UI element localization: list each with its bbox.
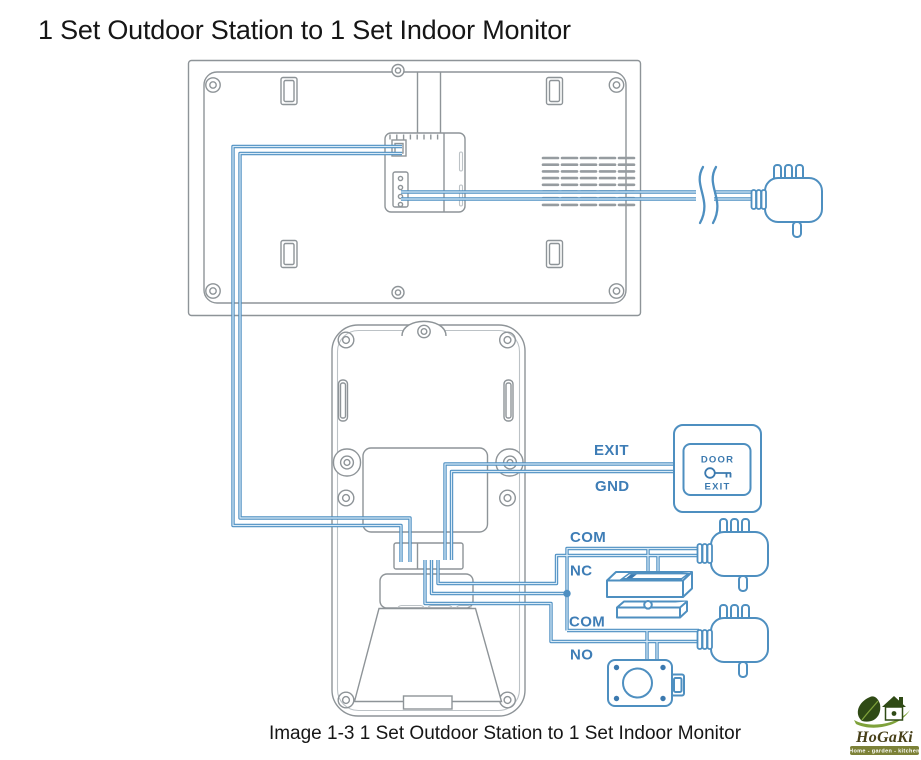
cable-break-icon (700, 167, 718, 223)
no-label: NO (570, 647, 593, 664)
nc-label: NC (570, 563, 592, 580)
power-adapter-icon (752, 165, 823, 237)
armature-plate (617, 601, 687, 618)
com-bottom-label: COM (569, 614, 605, 631)
speaker-horn (355, 609, 502, 702)
indoor-monitor-rear-panel (189, 61, 641, 316)
wire-junction-dot (563, 590, 570, 597)
image-caption: Image 1-3 1 Set Outdoor Station to 1 Set… (269, 723, 741, 745)
brand-logo: HoGaKi Home - garden - kitchen (848, 694, 921, 758)
power-adapter-icon (698, 605, 769, 677)
door-exit-button-exit-label: EXIT (705, 482, 731, 493)
logo-brand-text: HoGaKi (855, 729, 913, 746)
com-top-label: COM (570, 529, 606, 546)
gnd-label: GND (595, 478, 630, 495)
magnetic-lock (607, 572, 692, 597)
manual-page: 1 Set Outdoor Station to 1 Set Indoor Mo… (0, 0, 921, 760)
door-exit-button-door-label: DOOR (701, 455, 734, 466)
exit-label: EXIT (594, 442, 629, 459)
door-exit-button: DOOR EXIT (674, 425, 761, 512)
power-adapter-icon (698, 519, 769, 591)
leaf-house-icon (854, 696, 910, 728)
bottom-label-plate (404, 696, 453, 709)
wiring-diagram: DOOR EXIT (0, 0, 921, 760)
logo-tagline: Home - garden - kitchen (849, 749, 920, 755)
electric-rim-lock (608, 660, 684, 706)
strike-branch (647, 631, 657, 661)
